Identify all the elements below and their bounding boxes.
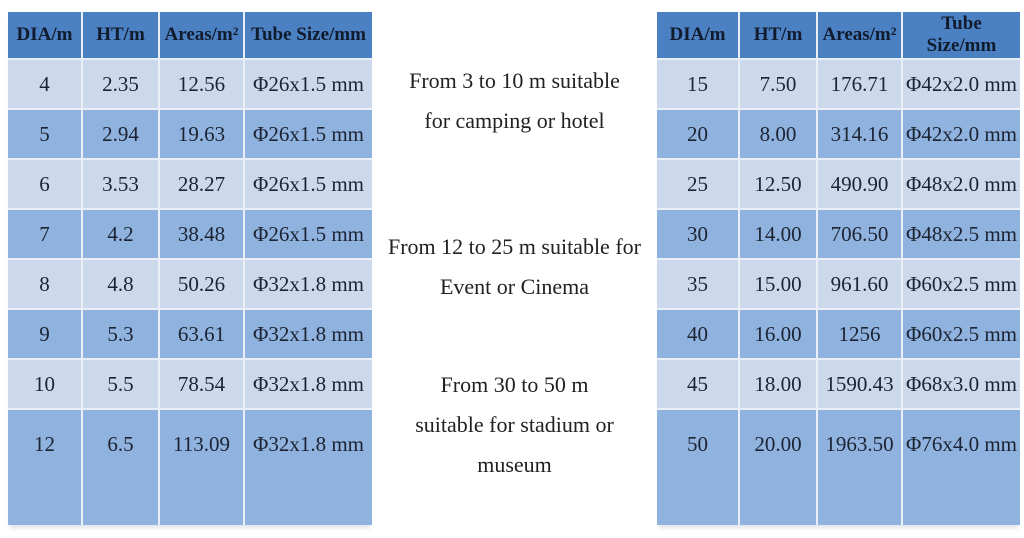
table-cell-areas: 38.48: [160, 210, 245, 260]
table-row: 52.9419.63Φ26x1.5 mm: [8, 110, 372, 160]
table-cell-ht: 6.5: [83, 410, 160, 525]
table-cell-tube: Φ42x2.0 mm: [903, 110, 1020, 160]
table-cell-tube: Φ76x4.0 mm: [903, 410, 1020, 525]
column-header-tube: Tube Size/mm: [903, 12, 1020, 60]
table-row: 126.5113.09Φ32x1.8 mm: [8, 410, 372, 525]
dome-spec-sheet: DIA/mHT/mAreas/m²Tube Size/mm42.3512.56Φ…: [0, 0, 1024, 538]
table-cell-areas: 50.26: [160, 260, 245, 310]
table-cell-tube: Φ32x1.8 mm: [245, 410, 372, 525]
table-cell-dia: 10: [8, 360, 83, 410]
table-cell-areas: 961.60: [818, 260, 903, 310]
table-cell-dia: 9: [8, 310, 83, 360]
table-cell-ht: 16.00: [740, 310, 818, 360]
table-row: 4518.001590.43Φ68x3.0 mm: [657, 360, 1020, 410]
table-row: 74.238.48Φ26x1.5 mm: [8, 210, 372, 260]
table-cell-tube: Φ60x2.5 mm: [903, 260, 1020, 310]
table-cell-dia: 7: [8, 210, 83, 260]
table-cell-dia: 45: [657, 360, 740, 410]
table-cell-dia: 25: [657, 160, 740, 210]
table-cell-dia: 30: [657, 210, 740, 260]
table-cell-dia: 20: [657, 110, 740, 160]
table-cell-tube: Φ32x1.8 mm: [245, 360, 372, 410]
table-cell-ht: 2.35: [83, 60, 160, 110]
table-cell-dia: 4: [8, 60, 83, 110]
table-cell-dia: 50: [657, 410, 740, 525]
table-row: 105.578.54Φ32x1.8 mm: [8, 360, 372, 410]
table-row: 5020.001963.50Φ76x4.0 mm: [657, 410, 1020, 525]
table-cell-tube: Φ26x1.5 mm: [245, 60, 372, 110]
table-cell-dia: 8: [8, 260, 83, 310]
note-line: Event or Cinema: [372, 267, 657, 307]
table-row: 157.50176.71Φ42x2.0 mm: [657, 60, 1020, 110]
table-cell-ht: 3.53: [83, 160, 160, 210]
table-cell-areas: 63.61: [160, 310, 245, 360]
table-cell-areas: 490.90: [818, 160, 903, 210]
table-cell-areas: 19.63: [160, 110, 245, 160]
table-cell-tube: Φ26x1.5 mm: [245, 110, 372, 160]
table-cell-tube: Φ42x2.0 mm: [903, 60, 1020, 110]
note-event-cinema: From 12 to 25 m suitable for Event or Ci…: [372, 227, 657, 307]
header-row: DIA/mHT/mAreas/m²Tube Size/mm: [8, 12, 372, 60]
table-cell-areas: 28.27: [160, 160, 245, 210]
table-cell-areas: 12.56: [160, 60, 245, 110]
table-cell-tube: Φ26x1.5 mm: [245, 160, 372, 210]
table-cell-ht: 14.00: [740, 210, 818, 260]
table-row: 4016.001256Φ60x2.5 mm: [657, 310, 1020, 360]
table-cell-dia: 35: [657, 260, 740, 310]
table-cell-dia: 6: [8, 160, 83, 210]
table-cell-ht: 15.00: [740, 260, 818, 310]
table-cell-tube: Φ60x2.5 mm: [903, 310, 1020, 360]
table-cell-dia: 40: [657, 310, 740, 360]
header-row: DIA/mHT/mAreas/m²Tube Size/mm: [657, 12, 1020, 60]
table-cell-ht: 5.3: [83, 310, 160, 360]
table-cell-areas: 78.54: [160, 360, 245, 410]
note-camping-hotel: From 3 to 10 m suitable for camping or h…: [372, 61, 657, 141]
note-line: From 12 to 25 m suitable for: [372, 227, 657, 267]
table-cell-dia: 12: [8, 410, 83, 525]
note-line: for camping or hotel: [372, 101, 657, 141]
note-line: From 30 to 50 m: [372, 365, 657, 405]
column-header-tube: Tube Size/mm: [245, 12, 372, 60]
table-cell-tube: Φ68x3.0 mm: [903, 360, 1020, 410]
table-cell-dia: 15: [657, 60, 740, 110]
table-cell-ht: 4.2: [83, 210, 160, 260]
table-cell-ht: 7.50: [740, 60, 818, 110]
table-cell-areas: 706.50: [818, 210, 903, 260]
column-header-dia: DIA/m: [657, 12, 740, 60]
table-cell-areas: 314.16: [818, 110, 903, 160]
table-cell-tube: Φ32x1.8 mm: [245, 260, 372, 310]
column-header-ht: HT/m: [83, 12, 160, 60]
table-cell-areas: 1963.50: [818, 410, 903, 525]
large-domes-table: DIA/mHT/mAreas/m²Tube Size/mm157.50176.7…: [657, 12, 1020, 525]
note-line: From 3 to 10 m suitable: [372, 61, 657, 101]
table-cell-ht: 2.94: [83, 110, 160, 160]
table-row: 3014.00706.50Φ48x2.5 mm: [657, 210, 1020, 260]
table-row: 95.363.61Φ32x1.8 mm: [8, 310, 372, 360]
column-header-ht: HT/m: [740, 12, 818, 60]
table-cell-ht: 4.8: [83, 260, 160, 310]
small-domes-table: DIA/mHT/mAreas/m²Tube Size/mm42.3512.56Φ…: [8, 12, 372, 525]
table-cell-areas: 1256: [818, 310, 903, 360]
table-cell-areas: 176.71: [818, 60, 903, 110]
table-cell-tube: Φ48x2.5 mm: [903, 210, 1020, 260]
table-cell-ht: 20.00: [740, 410, 818, 525]
column-header-dia: DIA/m: [8, 12, 83, 60]
table-cell-tube: Φ26x1.5 mm: [245, 210, 372, 260]
table-cell-tube: Φ48x2.0 mm: [903, 160, 1020, 210]
table-cell-ht: 12.50: [740, 160, 818, 210]
table-row: 63.5328.27Φ26x1.5 mm: [8, 160, 372, 210]
table-cell-ht: 8.00: [740, 110, 818, 160]
table-row: 42.3512.56Φ26x1.5 mm: [8, 60, 372, 110]
column-header-areas: Areas/m²: [818, 12, 903, 60]
table-cell-areas: 1590.43: [818, 360, 903, 410]
note-line: suitable for stadium or: [372, 405, 657, 445]
column-header-areas: Areas/m²: [160, 12, 245, 60]
table-cell-areas: 113.09: [160, 410, 245, 525]
table-cell-ht: 18.00: [740, 360, 818, 410]
table-cell-ht: 5.5: [83, 360, 160, 410]
table-cell-dia: 5: [8, 110, 83, 160]
table-row: 3515.00961.60Φ60x2.5 mm: [657, 260, 1020, 310]
table-row: 2512.50490.90Φ48x2.0 mm: [657, 160, 1020, 210]
table-cell-tube: Φ32x1.8 mm: [245, 310, 372, 360]
note-line: museum: [372, 445, 657, 485]
table-row: 208.00314.16Φ42x2.0 mm: [657, 110, 1020, 160]
table-row: 84.850.26Φ32x1.8 mm: [8, 260, 372, 310]
note-stadium-museum: From 30 to 50 m suitable for stadium or …: [372, 365, 657, 485]
